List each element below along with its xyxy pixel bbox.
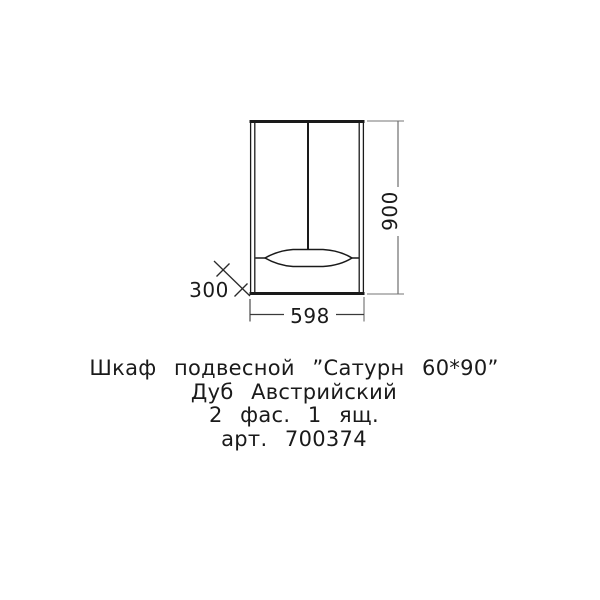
width-dimension: 598	[250, 297, 364, 328]
cabinet-outline	[250, 120, 365, 295]
height-dimension: 900	[367, 121, 404, 294]
product-title: Шкаф подвесной ”Сатурн 60*90”	[0, 357, 588, 381]
product-drawing-page: 900 598 300 Шкаф подвесной ”Сатурн 60*90…	[0, 0, 600, 600]
product-caption: Шкаф подвесной ”Сатурн 60*90” Дуб Австри…	[0, 357, 588, 451]
width-dimension-label: 598	[290, 304, 330, 328]
product-configuration: 2 фас. 1 ящ.	[0, 404, 588, 428]
height-dimension-label: 900	[378, 191, 402, 231]
product-finish: Дуб Австрийский	[0, 381, 588, 405]
cabinet-technical-drawing: 900 598 300	[0, 0, 600, 600]
depth-dimension: 300	[189, 261, 250, 302]
depth-dimension-label: 300	[189, 278, 229, 302]
depth-tick-mark-lower	[235, 284, 248, 297]
product-article-number: арт. 700374	[0, 428, 588, 452]
drawer-handle-lens	[265, 250, 352, 267]
